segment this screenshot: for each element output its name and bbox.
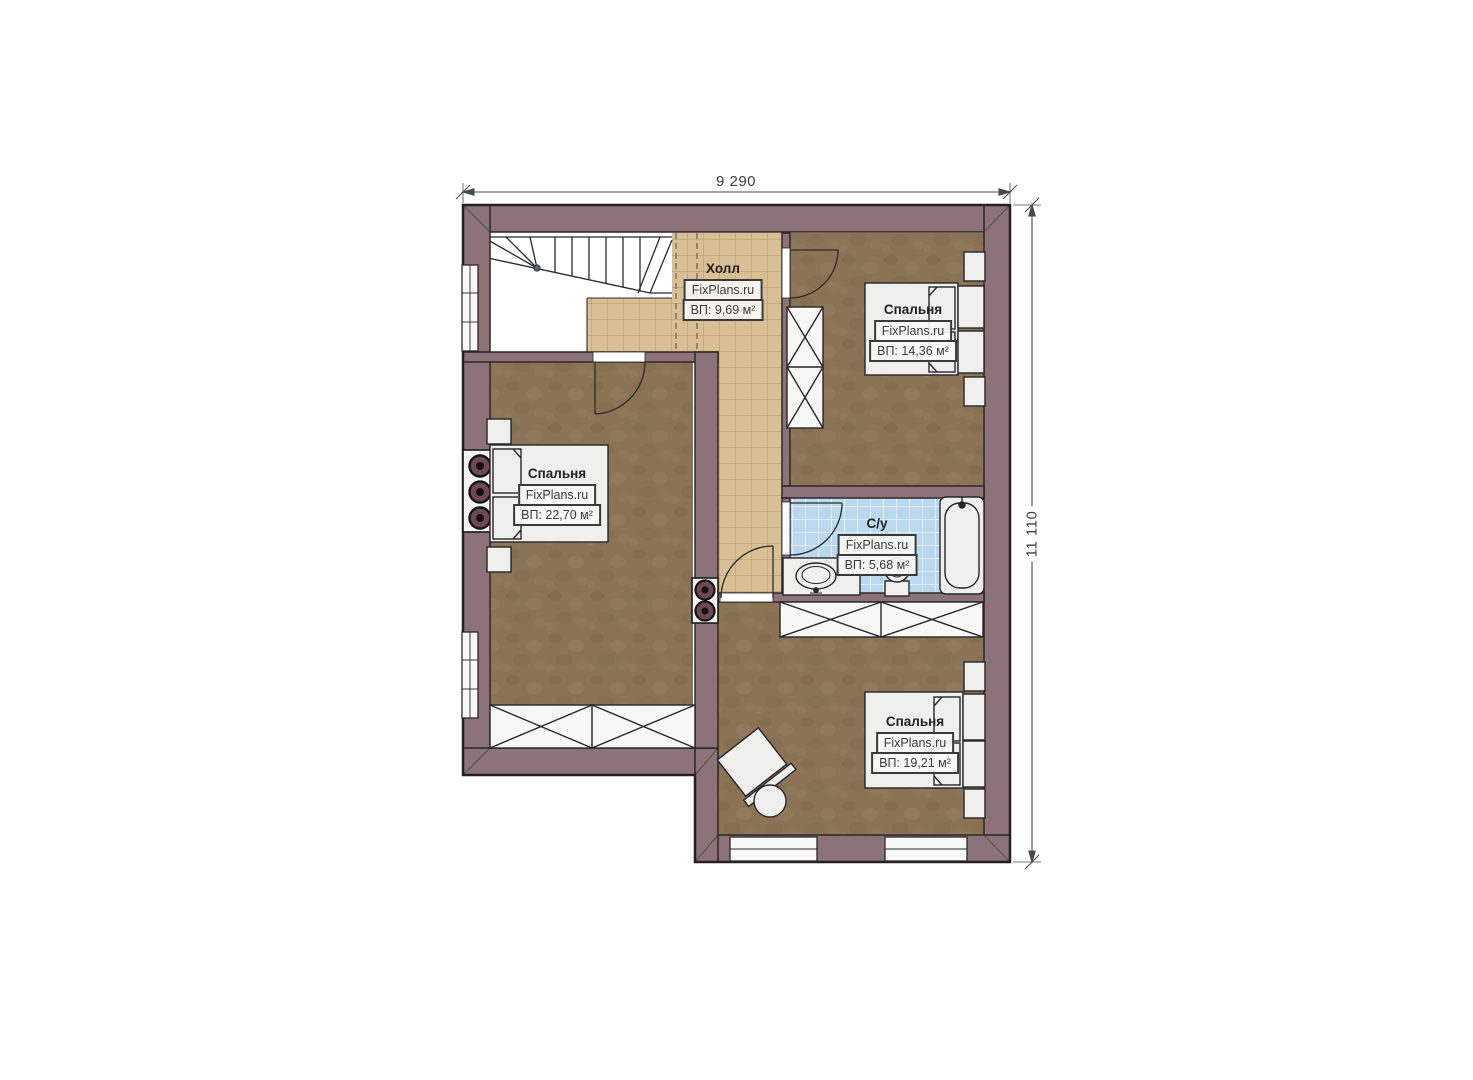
dimension-height-label: 11 110 (1024, 507, 1041, 562)
wall-bottom-left (463, 748, 718, 775)
floor-plan-page: 9 290 11 110 Холл FixPlans.ru ВП: 9,69 м… (0, 0, 1473, 1080)
pillow (929, 332, 955, 372)
window-bottom-2 (885, 837, 967, 861)
wall-right (984, 205, 1010, 862)
nightstand (964, 377, 985, 406)
bathtub (940, 497, 984, 594)
pillow (929, 287, 955, 329)
wardrobe-top-right-bedroom (787, 307, 823, 428)
window-bottom-1 (730, 837, 817, 861)
wall-top (463, 205, 1010, 232)
wall-bedroom-bathroom (782, 486, 984, 498)
window-left-bottom (462, 632, 478, 718)
nightstand (964, 662, 985, 691)
wardrobe-left-bedroom (490, 705, 695, 748)
stool (754, 785, 786, 817)
headboard (963, 694, 985, 740)
wall-lower-left-section (695, 748, 718, 862)
wall-corridor (695, 352, 718, 748)
nightstand (487, 419, 511, 444)
toilet (885, 558, 909, 596)
nightstand (964, 789, 985, 818)
pillow (493, 449, 521, 493)
nightstand (487, 547, 511, 572)
pillow (934, 697, 960, 741)
headboard (963, 741, 985, 787)
bedroom-left-floor (490, 362, 693, 748)
headboard (958, 286, 984, 328)
pillow (934, 743, 960, 785)
sink (783, 558, 860, 595)
chimney-corridor (692, 578, 718, 623)
floor-plan-drawing (0, 0, 1473, 1080)
headboard (958, 331, 984, 373)
dimension-width-label: 9 290 (716, 173, 756, 190)
pillow (493, 497, 521, 539)
wall-bedroom-left-top (463, 352, 718, 362)
window-left-top (462, 265, 478, 351)
stair-hub (534, 265, 540, 271)
wardrobe-bottom-bedroom (780, 602, 983, 637)
nightstand (964, 252, 985, 281)
